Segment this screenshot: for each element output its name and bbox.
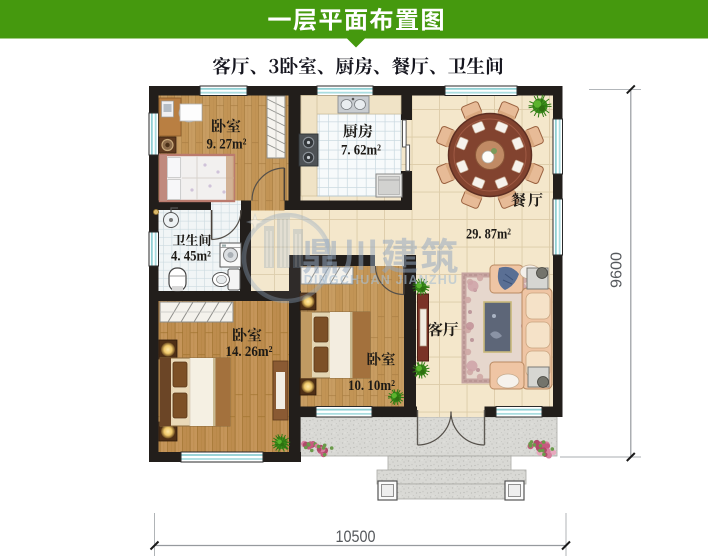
svg-text:9600: 9600 [609,252,626,288]
svg-text:9. 27m²: 9. 27m² [207,137,247,153]
svg-text:10500: 10500 [336,528,376,546]
svg-text:7. 62m²: 7. 62m² [341,143,381,159]
svg-text:4. 45m²: 4. 45m² [171,249,211,265]
svg-text:14. 26m²: 14. 26m² [226,344,273,360]
svg-text:DINGCHUAN JIANZHU: DINGCHUAN JIANZHU [304,273,458,287]
svg-text:10. 10m²: 10. 10m² [348,378,395,394]
svg-text:29. 87m²: 29. 87m² [466,227,511,243]
